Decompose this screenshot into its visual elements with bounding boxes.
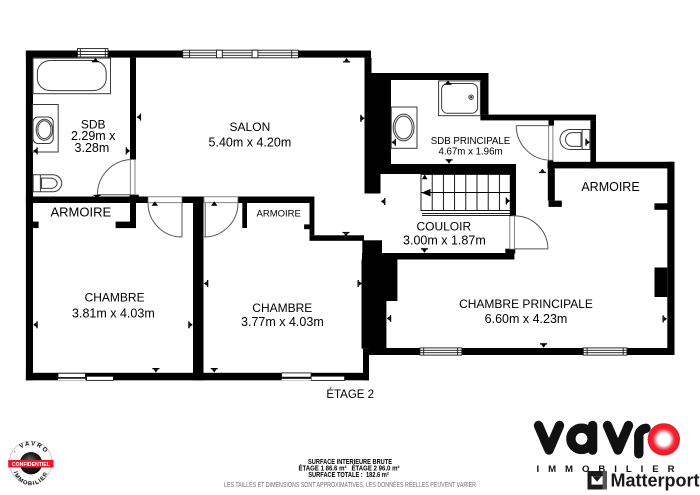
svg-text:4.67m x 1.96m: 4.67m x 1.96m — [438, 147, 502, 158]
svg-text:3.81m x 4.03m: 3.81m x 4.03m — [72, 307, 155, 321]
svg-text:5.40m x 4.20m: 5.40m x 4.20m — [209, 136, 292, 150]
svg-text:ARMOIRE: ARMOIRE — [257, 208, 301, 219]
svg-text:SALON: SALON — [230, 120, 271, 134]
svg-text:Matterport: Matterport — [611, 471, 700, 491]
svg-text:SURFACE TOTALE : 182.6 m²: SURFACE TOTALE : 182.6 m² — [308, 470, 389, 479]
svg-text:6.60m x 4.23m: 6.60m x 4.23m — [485, 312, 568, 326]
svg-text:3.77m x 4.03m: 3.77m x 4.03m — [241, 315, 324, 329]
svg-text:LES TAILLES ET DIMENSIONS SONT: LES TAILLES ET DIMENSIONS SONT APPROXIMA… — [224, 480, 476, 489]
svg-text:3.28m: 3.28m — [75, 141, 110, 155]
svg-text:ÉTAGE 2: ÉTAGE 2 — [326, 388, 374, 401]
svg-text:COULOIR: COULOIR — [416, 220, 471, 234]
svg-text:CHAMBRE PRINCIPALE: CHAMBRE PRINCIPALE — [459, 297, 593, 311]
svg-text:ARMOIRE: ARMOIRE — [581, 180, 639, 194]
svg-text:CONFIDENTIEL: CONFIDENTIEL — [12, 462, 50, 468]
svg-text:ARMOIRE: ARMOIRE — [50, 205, 111, 220]
svg-text:SDB PRINCIPALE: SDB PRINCIPALE — [431, 136, 511, 147]
svg-text:CHAMBRE: CHAMBRE — [85, 291, 145, 305]
svg-text:3.00m x 1.87m: 3.00m x 1.87m — [403, 234, 486, 248]
svg-text:CHAMBRE: CHAMBRE — [252, 301, 312, 315]
